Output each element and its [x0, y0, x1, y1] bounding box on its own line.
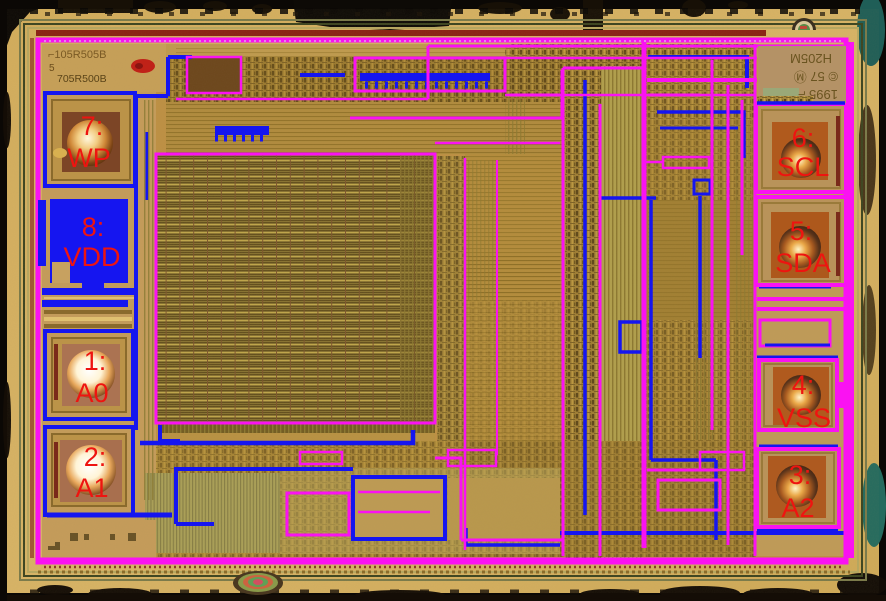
svg-text:6:: 6:	[792, 123, 815, 153]
svg-text:⌐105R505B: ⌐105R505B	[48, 49, 106, 61]
svg-text:1995 ⌐: 1995 ⌐	[797, 87, 838, 102]
svg-text:VDD: VDD	[63, 242, 120, 272]
svg-text:8:: 8:	[82, 212, 105, 242]
svg-text:A2: A2	[781, 493, 814, 523]
svg-text:1:: 1:	[84, 346, 107, 376]
svg-text:5: 5	[49, 63, 55, 74]
svg-text:2:: 2:	[84, 442, 107, 472]
svg-text:A0: A0	[75, 378, 108, 408]
svg-text:4:: 4:	[792, 370, 815, 400]
svg-text:5:: 5:	[790, 216, 813, 246]
svg-text:SDA: SDA	[775, 248, 831, 278]
svg-text:A1: A1	[75, 473, 108, 503]
svg-text:SCL: SCL	[777, 152, 830, 182]
svg-text:3:: 3:	[789, 460, 812, 490]
svg-text:7:: 7:	[81, 111, 104, 141]
svg-text:705R500B: 705R500B	[57, 73, 107, 85]
svg-text:VSS: VSS	[777, 403, 831, 433]
svg-text:WP: WP	[67, 143, 111, 173]
svg-text:H205M: H205M	[790, 51, 832, 66]
svg-text:© 57 Ⓜ: © 57 Ⓜ	[794, 69, 838, 84]
